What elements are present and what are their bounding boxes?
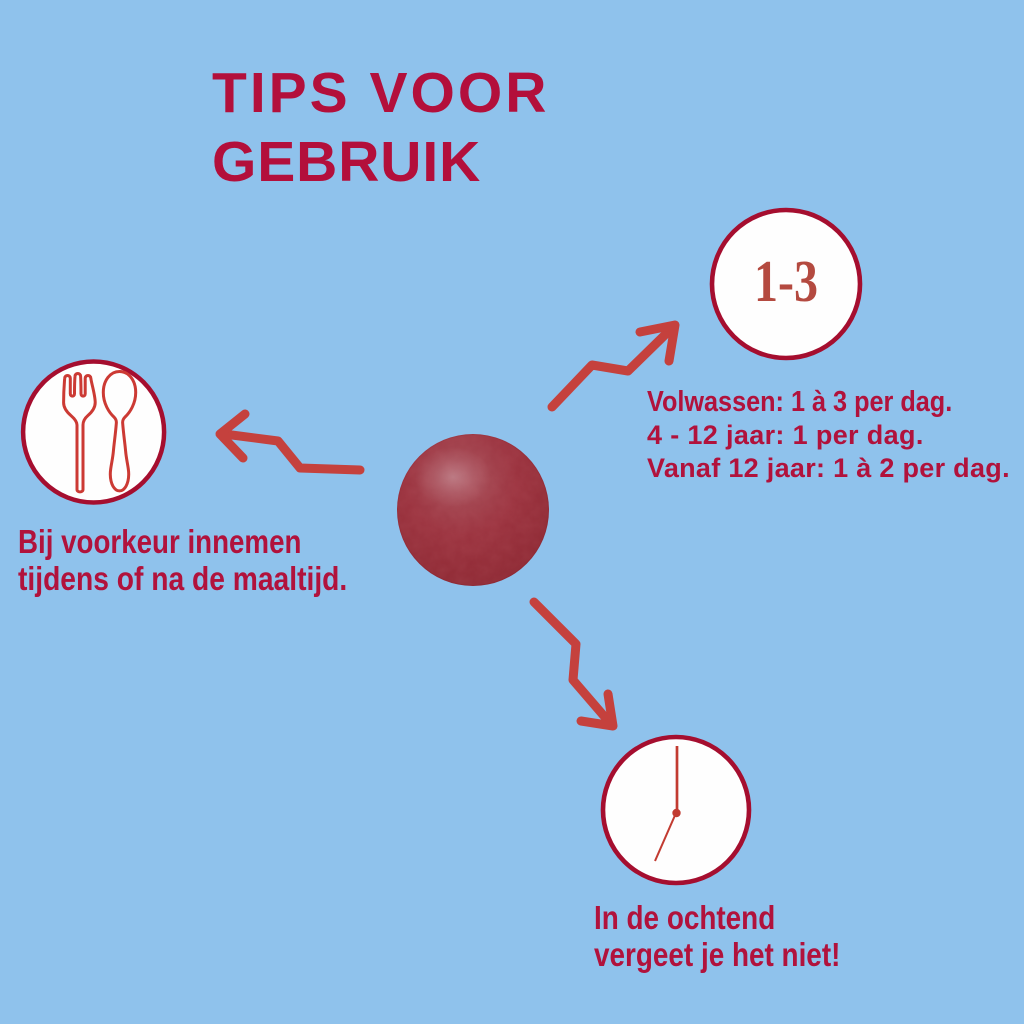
svg-text:1-3: 1-3 xyxy=(754,248,818,314)
